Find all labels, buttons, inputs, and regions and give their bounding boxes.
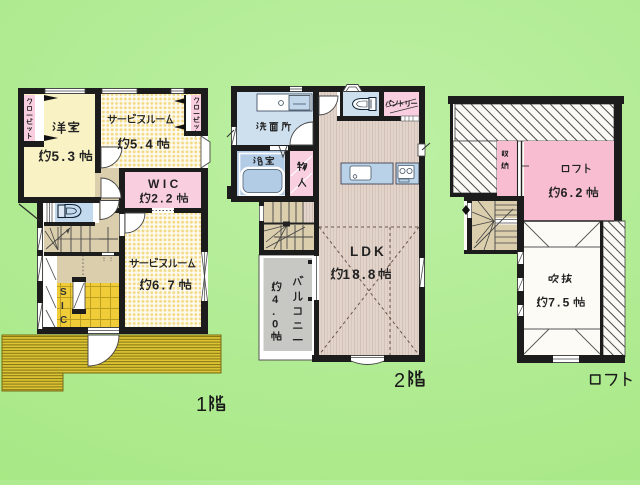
svg-text:S: S	[60, 287, 67, 298]
svg-text:.: .	[272, 306, 275, 318]
svg-text:1: 1	[196, 394, 207, 416]
svg-text:6.7: 6.7	[152, 277, 177, 292]
svg-text:6.2: 6.2	[561, 186, 585, 200]
svg-text:5.3: 5.3	[52, 149, 78, 164]
svg-text:7.5: 7.5	[548, 296, 571, 310]
svg-text:I: I	[61, 301, 64, 312]
svg-text:C: C	[60, 315, 67, 326]
svg-text:0: 0	[272, 319, 278, 331]
svg-text:LDK: LDK	[350, 244, 387, 259]
svg-text:WIC: WIC	[148, 177, 182, 191]
svg-text:18.8: 18.8	[343, 267, 378, 282]
svg-text:2.2: 2.2	[151, 192, 174, 206]
svg-text:5.4: 5.4	[130, 136, 155, 151]
svg-text:4: 4	[272, 294, 279, 306]
svg-text:2: 2	[394, 370, 405, 392]
